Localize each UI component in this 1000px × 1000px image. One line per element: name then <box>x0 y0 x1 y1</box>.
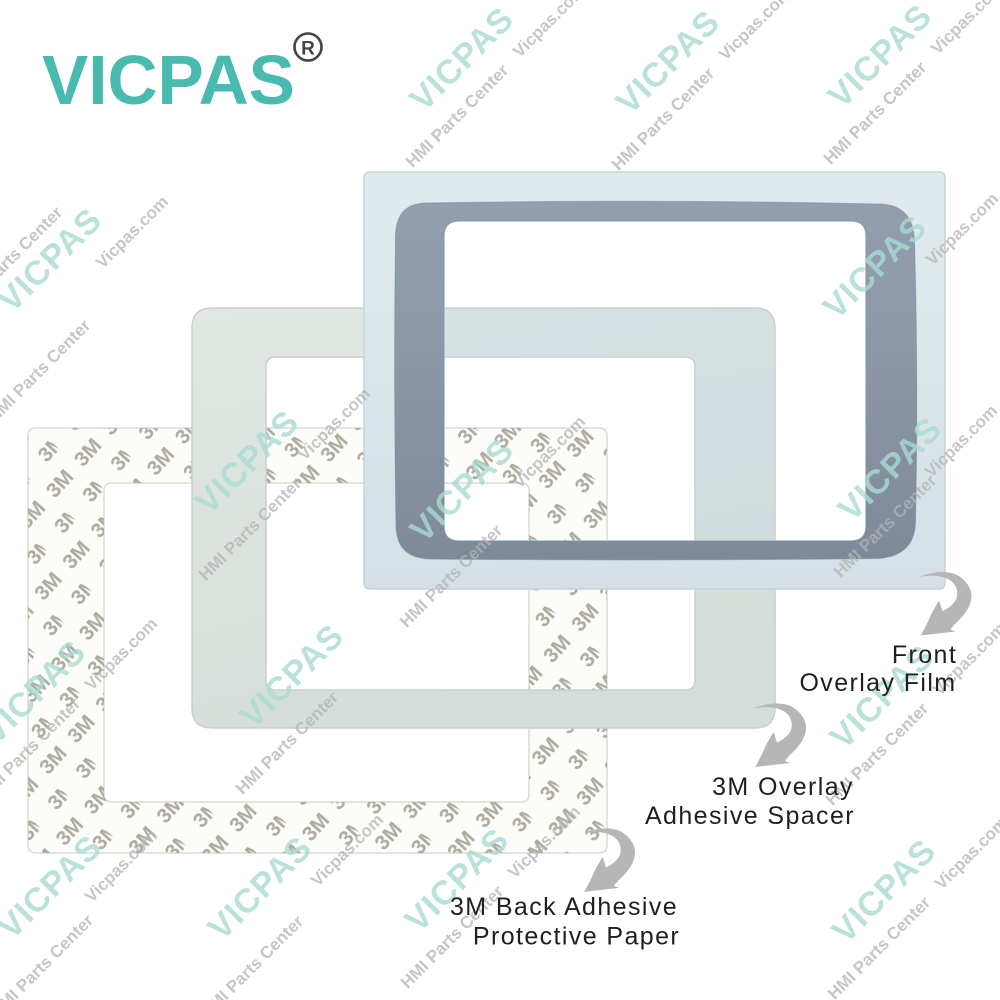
svg-text:R: R <box>301 39 315 60</box>
svg-text:VICPAS: VICPAS <box>42 41 295 119</box>
svg-text:Adhesive Spacer: Adhesive Spacer <box>645 802 855 830</box>
svg-text:3M Overlay: 3M Overlay <box>712 773 854 801</box>
svg-text:Front: Front <box>892 641 957 669</box>
svg-text:3M Back Adhesive: 3M Back Adhesive <box>450 893 678 921</box>
svg-text:Protective Paper: Protective Paper <box>473 923 680 951</box>
svg-text:Overlay Film: Overlay Film <box>799 669 956 697</box>
